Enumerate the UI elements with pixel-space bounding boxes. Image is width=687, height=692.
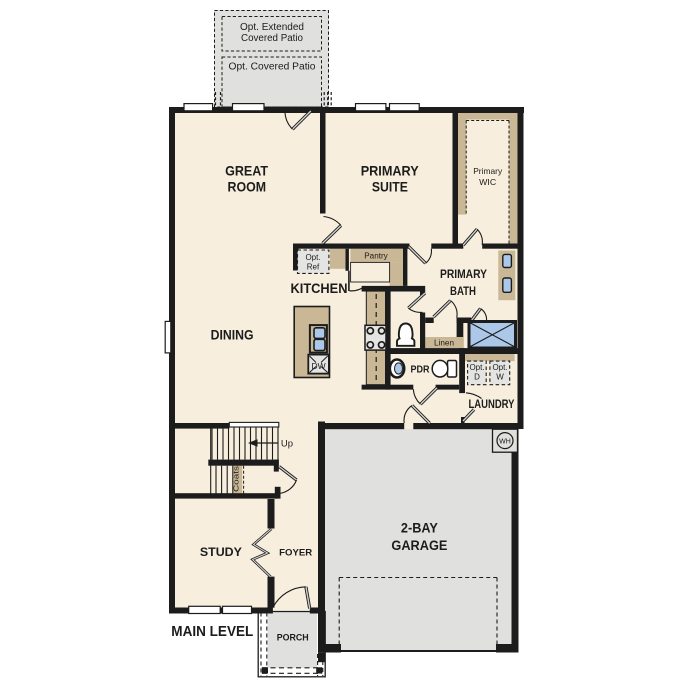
svg-text:FOYER: FOYER: [279, 548, 312, 559]
svg-text:Opt.: Opt.: [492, 363, 507, 372]
svg-text:GARAGE: GARAGE: [391, 538, 447, 553]
svg-text:WH: WH: [499, 438, 511, 445]
svg-text:ROOM: ROOM: [228, 178, 267, 194]
svg-text:WIC: WIC: [479, 177, 496, 187]
svg-text:D: D: [474, 373, 480, 382]
svg-text:Coats: Coats: [233, 465, 240, 492]
svg-text:Covered Patio: Covered Patio: [241, 33, 303, 44]
svg-text:W: W: [496, 373, 504, 382]
svg-text:PORCH: PORCH: [277, 633, 309, 644]
svg-text:BATH: BATH: [450, 284, 476, 298]
svg-text:Up: Up: [281, 439, 293, 450]
svg-text:Pantry: Pantry: [364, 252, 388, 261]
svg-text:2-BAY: 2-BAY: [401, 521, 438, 536]
svg-text:KITCHEN: KITCHEN: [291, 280, 348, 296]
svg-text:MAIN LEVEL: MAIN LEVEL: [171, 623, 253, 640]
svg-text:LAUNDRY: LAUNDRY: [469, 399, 515, 411]
svg-text:Opt.: Opt.: [469, 363, 484, 372]
svg-text:DINING: DINING: [211, 327, 254, 343]
svg-text:PRIMARY: PRIMARY: [440, 267, 487, 281]
svg-text:SUITE: SUITE: [372, 178, 408, 194]
svg-text:Ref: Ref: [307, 263, 320, 272]
svg-text:Opt.: Opt.: [305, 253, 320, 262]
svg-text:PDR: PDR: [411, 363, 430, 375]
svg-text:Opt. Extended: Opt. Extended: [240, 22, 304, 33]
svg-text:Opt. Covered Patio: Opt. Covered Patio: [229, 62, 316, 73]
svg-text:STUDY: STUDY: [200, 545, 242, 559]
svg-text:GREAT: GREAT: [225, 163, 268, 179]
svg-text:Primary: Primary: [473, 166, 503, 176]
svg-text:DW: DW: [312, 361, 326, 371]
svg-text:PRIMARY: PRIMARY: [361, 163, 420, 179]
svg-text:Linen: Linen: [434, 339, 454, 348]
